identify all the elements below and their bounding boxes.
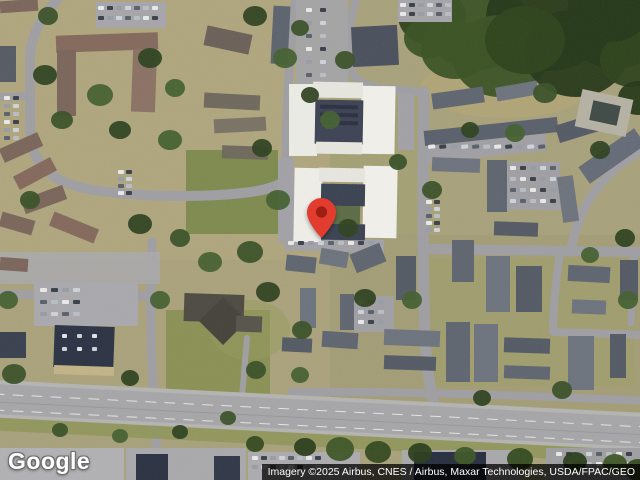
pin-body <box>307 198 336 238</box>
pin-dot <box>315 206 326 217</box>
attribution-bar: Imagery ©2025 Airbus, CNES / Airbus, Max… <box>262 464 640 480</box>
map-viewport[interactable]: Google Imagery ©2025 Airbus, CNES / Airb… <box>0 0 640 480</box>
google-logo[interactable]: Google <box>8 448 90 475</box>
map-pin-icon[interactable] <box>307 198 336 238</box>
attribution-text: Imagery ©2025 Airbus, CNES / Airbus, Max… <box>268 466 635 478</box>
satellite-imagery <box>0 0 640 480</box>
